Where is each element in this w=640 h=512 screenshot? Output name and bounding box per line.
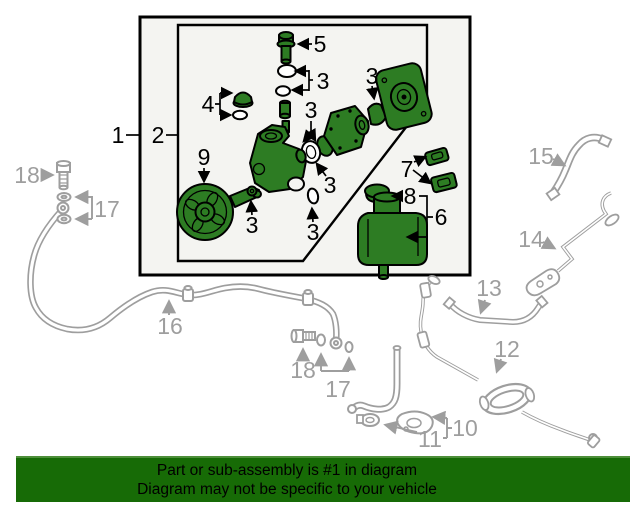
callout-11-label: 11 [418, 426, 442, 452]
callout-17-label: 17 [325, 376, 351, 402]
banjo-bolt-18-upper [57, 161, 70, 189]
footer-note-banner: Part or sub-assembly is #1 in diagram Di… [16, 456, 630, 502]
footer-note-text: Part or sub-assembly is #1 in diagram Di… [16, 458, 558, 499]
callout-5-label: 5 [314, 31, 327, 57]
callout-16-label: 16 [157, 313, 183, 339]
washers-17-lower [317, 335, 353, 353]
callout-9-label: 9 [198, 144, 211, 170]
callout-3-label: 3 [305, 97, 318, 123]
callout-3-label: 3 [307, 219, 320, 245]
suction-tube-11 [348, 346, 401, 426]
callout-14-label: 14 [518, 226, 544, 252]
callout-3-label: 3 [324, 172, 337, 198]
callout-2-label: 2 [152, 122, 165, 148]
washers-17-upper [58, 193, 71, 223]
parts-diagram-page: 1 2 5 3 4 3 3 9 3 3 3 7 8 6 15 14 13 12 … [0, 0, 640, 512]
callout-18-label: 18 [14, 162, 40, 188]
banner-line2: Diagram may not be specific to your vehi… [16, 480, 558, 499]
callout-10-label: 10 [452, 415, 478, 441]
callout-1-label: 1 [112, 122, 125, 148]
callout-12-label: 12 [494, 336, 520, 362]
callout-8-label: 8 [404, 183, 417, 209]
callout-4-label: 4 [202, 91, 215, 117]
callout-17-label: 17 [94, 196, 120, 222]
o-ring-3 [276, 86, 290, 95]
hose-15 [547, 135, 612, 200]
callout-18-label: 18 [290, 357, 316, 383]
callout-3-label: 3 [366, 63, 379, 89]
shaft-seal-3 [248, 187, 257, 196]
parts-diagram-image: 1 2 5 3 4 3 3 9 3 3 3 7 8 6 15 14 13 12 … [0, 0, 640, 512]
callout-7-label: 7 [401, 156, 414, 182]
o-ring-3 [278, 65, 296, 77]
callout-6-label: 6 [435, 204, 448, 230]
banner-line1: Part or sub-assembly is #1 in diagram [16, 461, 558, 480]
callout-3-label: 3 [246, 212, 259, 238]
callout-3-label: 3 [317, 68, 330, 94]
callout-13-label: 13 [476, 275, 502, 301]
callout-15-label: 15 [528, 143, 554, 169]
banjo-bolt-18-lower [292, 330, 316, 342]
